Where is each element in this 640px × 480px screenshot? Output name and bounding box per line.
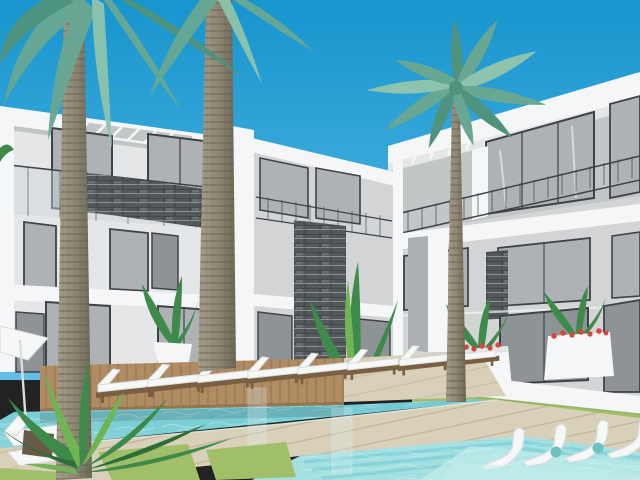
glass-pool-wall-2 [332,408,352,474]
floor2-window-2 [110,229,148,291]
teal-cup-table-2 [593,443,604,454]
junction-white-column [428,234,448,352]
architectural-render-image [0,0,640,480]
stone-strip-right [486,250,508,320]
scene-canvas [0,0,640,480]
mid-window-3 [612,232,640,298]
floor2-window-3 [152,233,178,290]
planter-2-box [544,332,614,380]
right-corner-strip [393,148,403,360]
teal-cup-table-1 [551,447,562,458]
floor2-window-1 [24,222,56,290]
junction-recess [408,236,428,352]
